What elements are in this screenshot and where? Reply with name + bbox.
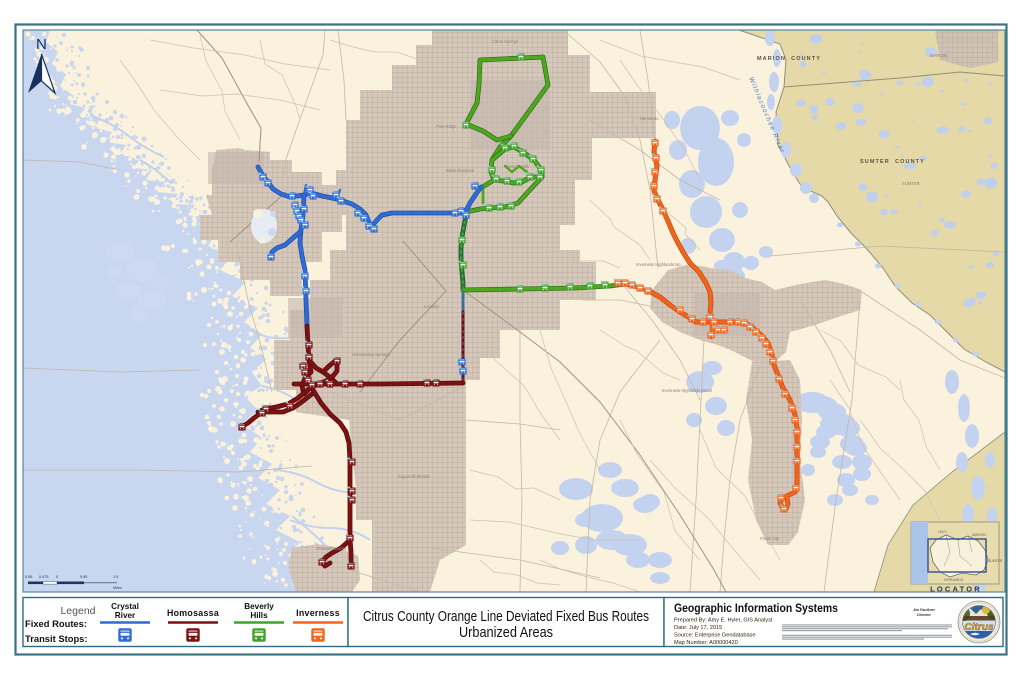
svg-text:Transit Stops:: Transit Stops: [25, 633, 88, 644]
svg-text:Citrus County Orange Line Devi: Citrus County Orange Line Deviated Fixed… [363, 608, 649, 625]
svg-text:0: 0 [56, 575, 58, 579]
svg-text:Pine Ridge: Pine Ridge [436, 124, 457, 129]
svg-text:MARION: MARION [972, 533, 986, 537]
svg-text:SUMTER COUNTY: SUMTER COUNTY [860, 159, 925, 165]
svg-text:0.95: 0.95 [25, 575, 32, 579]
svg-text:MARION COUNTY: MARION COUNTY [757, 56, 821, 62]
svg-text:HERNANDO: HERNANDO [944, 578, 964, 582]
svg-text:Jim Faulkner: Jim Faulkner [913, 608, 936, 612]
svg-text:N: N [36, 36, 47, 53]
svg-text:SUMTER: SUMTER [902, 181, 920, 186]
svg-text:Beverly: Beverly [244, 602, 274, 611]
svg-text:Director: Director [917, 613, 931, 617]
svg-text:Floral City: Floral City [760, 536, 780, 541]
svg-text:Source: Enterprise Geodatabas: Source: Enterprise Geodatabase [674, 633, 755, 639]
svg-text:Inverness: Inverness [296, 608, 340, 618]
svg-text:Crystal: Crystal [111, 602, 139, 611]
svg-text:Inverness Highlands No.: Inverness Highlands No. [636, 262, 682, 267]
svg-text:SUMTER: SUMTER [988, 559, 1003, 563]
svg-text:Citrus: Citrus [965, 622, 994, 633]
svg-text:Citrus Springs: Citrus Springs [492, 39, 518, 44]
svg-text:LEVY: LEVY [938, 530, 947, 534]
svg-text:Beverly Hills: Beverly Hills [506, 164, 529, 169]
svg-text:Date: July 17, 2015: Date: July 17, 2015 [674, 625, 722, 631]
svg-text:Homosassa: Homosassa [167, 608, 219, 618]
svg-text:1.9: 1.9 [113, 575, 118, 579]
svg-text:Geographic Information Systems: Geographic Information Systems [674, 603, 838, 615]
svg-text:Prepared By: Amy E. Hyler, GI: Prepared By: Amy E. Hyler, GIS Analyst [674, 618, 773, 624]
svg-text:0.95: 0.95 [80, 575, 87, 579]
svg-text:Chassahowitzka: Chassahowitzka [316, 546, 347, 551]
svg-text:Legend: Legend [60, 605, 95, 617]
svg-text:Black Diamond: Black Diamond [446, 168, 475, 173]
svg-text:Urbanized Areas: Urbanized Areas [459, 624, 553, 641]
svg-text:Lecanto: Lecanto [424, 304, 440, 309]
svg-text:Sugarmill Woods: Sugarmill Woods [398, 474, 430, 479]
svg-text:Hernando: Hernando [640, 116, 659, 121]
svg-text:Fixed Routes:: Fixed Routes: [25, 618, 87, 629]
svg-text:Hills: Hills [250, 611, 268, 620]
svg-text:River: River [115, 611, 136, 620]
svg-text:MARION: MARION [930, 53, 947, 58]
svg-text:Homosassa Springs: Homosassa Springs [352, 352, 389, 357]
svg-text:Inverness Highlands South: Inverness Highlands South [662, 388, 713, 393]
svg-text:Miles: Miles [113, 586, 122, 590]
svg-text:0.475: 0.475 [39, 575, 49, 579]
svg-text:Map Number: A00000420: Map Number: A00000420 [674, 640, 738, 646]
